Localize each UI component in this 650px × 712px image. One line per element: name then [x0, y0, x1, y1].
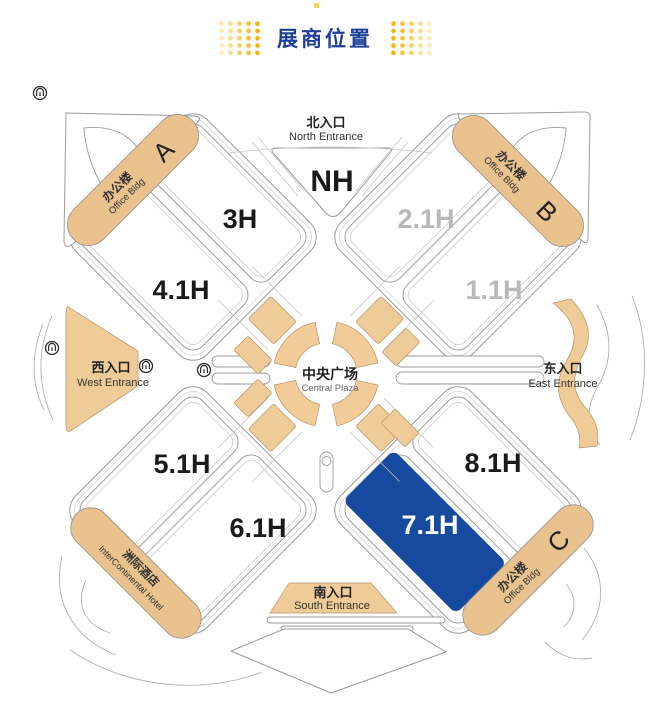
south-entrance-label-en: South Entrance — [294, 600, 370, 612]
south-corridor-node — [322, 457, 331, 466]
hall-8-1h-label: 8.1H — [464, 448, 521, 478]
hotel-ramp-road — [81, 580, 110, 633]
hall-3h-label: 3H — [223, 204, 258, 234]
south-entrance-label-zh: 南入口 — [313, 585, 352, 600]
exhibitor-location-page: 展商位置 — [0, 0, 650, 712]
central-plaza-label-en: Central Plaza — [301, 383, 359, 394]
hall-7-1h-label: 7.1H — [401, 510, 458, 540]
east-corridor-bar — [396, 372, 544, 384]
office-c-road — [564, 584, 574, 627]
east-edge-road — [630, 296, 645, 440]
hall-nh-label: NH — [310, 165, 353, 198]
west-entrance-label-en: West Entrance — [77, 377, 149, 389]
metro-station-icon — [140, 360, 153, 373]
east-entrance-label-zh: 东入口 — [543, 361, 582, 376]
west-edge-road — [34, 324, 44, 410]
north-entrance-label-zh: 北入口 — [306, 115, 345, 130]
metro-station-icon — [198, 364, 211, 377]
hall-6-1h-label: 6.1H — [229, 513, 286, 543]
office-c-road — [582, 548, 601, 640]
hall-4-1h-label: 4.1H — [152, 275, 209, 305]
south-lobby-shape — [231, 629, 446, 693]
east-corridor-bar — [396, 356, 544, 367]
venue-map: 办公楼 Office Bldg A 办公楼 Office Bldg B 办公楼 … — [0, 0, 650, 712]
hall-2-1h-label: 2.1H — [397, 204, 454, 234]
southeast-edge-road — [545, 642, 592, 659]
west-entrance-label-zh: 西入口 — [91, 360, 130, 375]
metro-station-icon — [46, 342, 59, 355]
west-edge-road — [41, 316, 53, 420]
metro-station-icon — [34, 87, 47, 100]
hall-1-1h-label: 1.1H — [465, 275, 522, 305]
hall-5-1h-label: 5.1H — [153, 449, 210, 479]
east-entrance-label-en: East Entrance — [528, 378, 597, 390]
south-road-bar — [267, 617, 445, 623]
walkway-west-upper — [234, 336, 272, 374]
central-plaza-label-zh: 中央广场 — [302, 366, 358, 382]
southwest-edge-road — [70, 650, 262, 685]
north-entrance-label-en: North Entrance — [289, 131, 363, 143]
